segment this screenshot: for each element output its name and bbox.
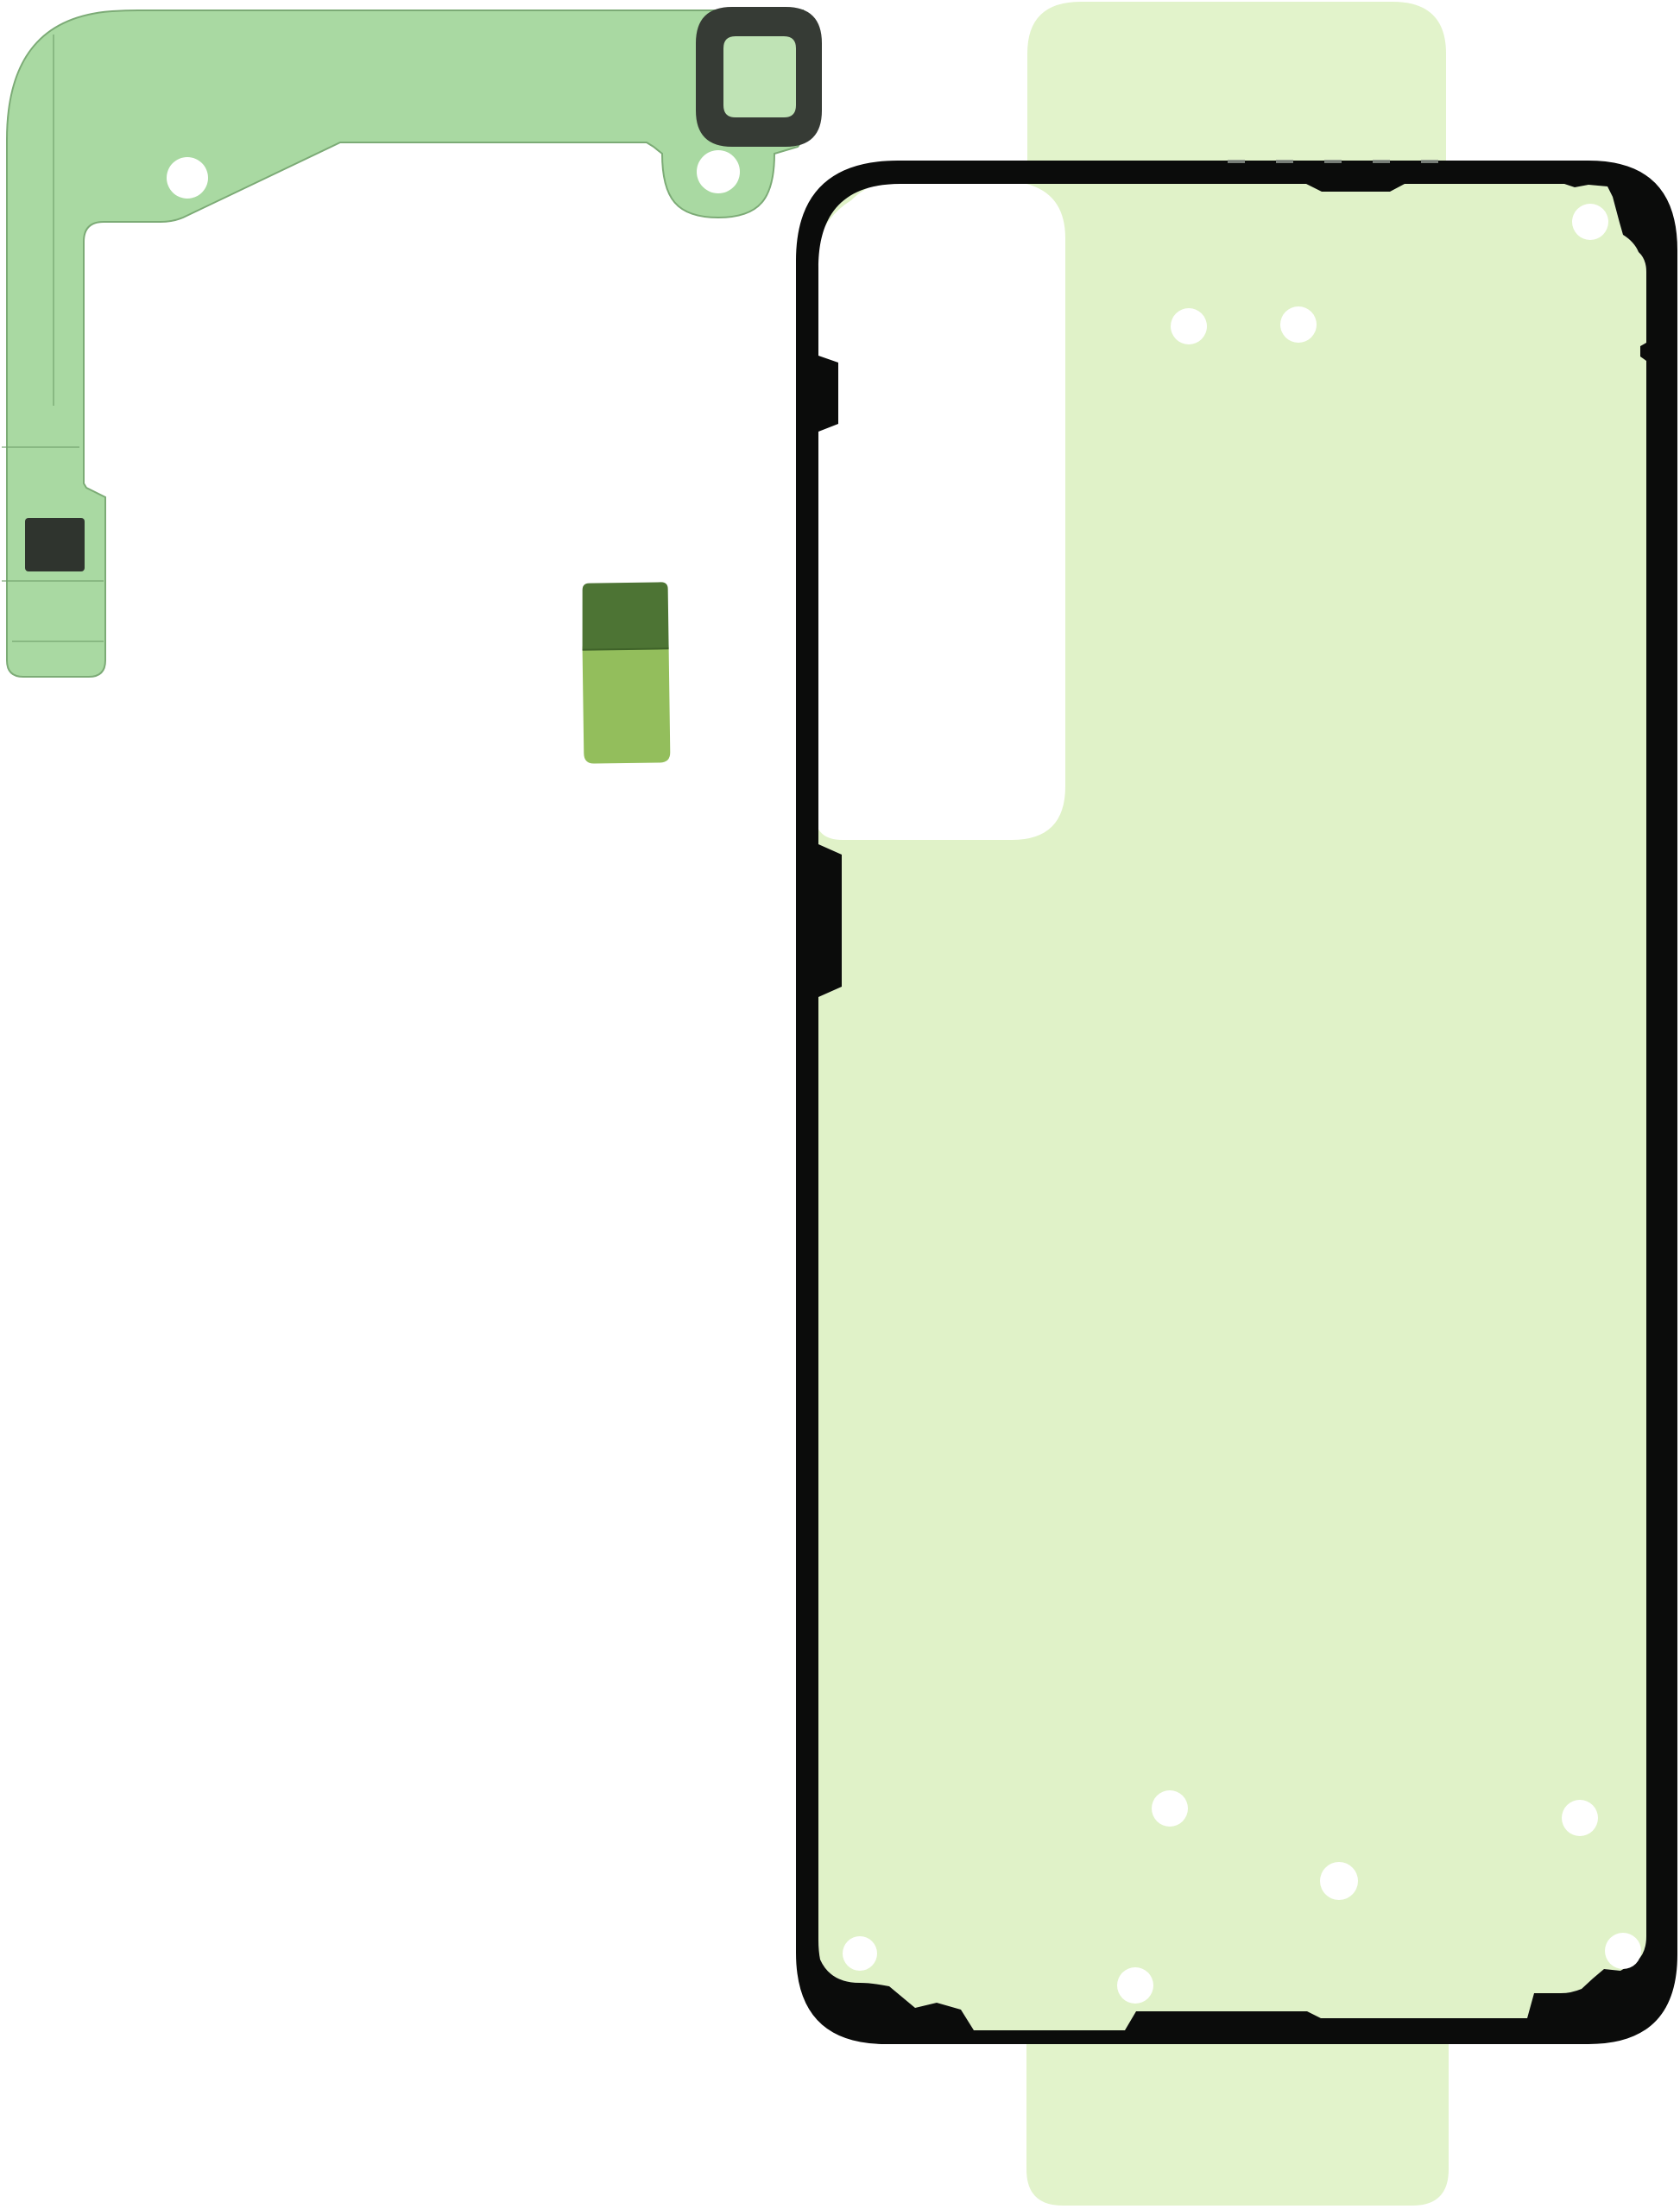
- back-cover-adhesive: [796, 2, 1677, 2206]
- punched-hole: [1572, 204, 1608, 240]
- l-tape-body: [7, 10, 803, 677]
- dark-adhesive-patch: [25, 518, 85, 571]
- camera-frame-adhesive: [2, 7, 822, 677]
- camera-cutout: [815, 181, 1065, 840]
- punched-hole: [1117, 1967, 1153, 2004]
- adhesive-kit-scene: [0, 0, 1680, 2209]
- punched-hole: [843, 1936, 877, 1971]
- punched-hole: [1562, 1800, 1598, 1836]
- alignment-hole-right: [697, 150, 740, 193]
- alignment-hole-left: [167, 157, 208, 199]
- punched-hole: [1152, 1790, 1188, 1827]
- pad-upper-half: [582, 582, 669, 649]
- product-photo-canvas: [0, 0, 1680, 2209]
- punched-hole: [1280, 306, 1317, 343]
- punched-hole: [1320, 1862, 1358, 1900]
- pad-lower-half: [583, 645, 671, 763]
- small-adhesive-pad: [582, 582, 671, 763]
- punched-hole: [1171, 308, 1207, 344]
- punched-hole: [1605, 1933, 1641, 1969]
- pad-seam: [583, 648, 669, 649]
